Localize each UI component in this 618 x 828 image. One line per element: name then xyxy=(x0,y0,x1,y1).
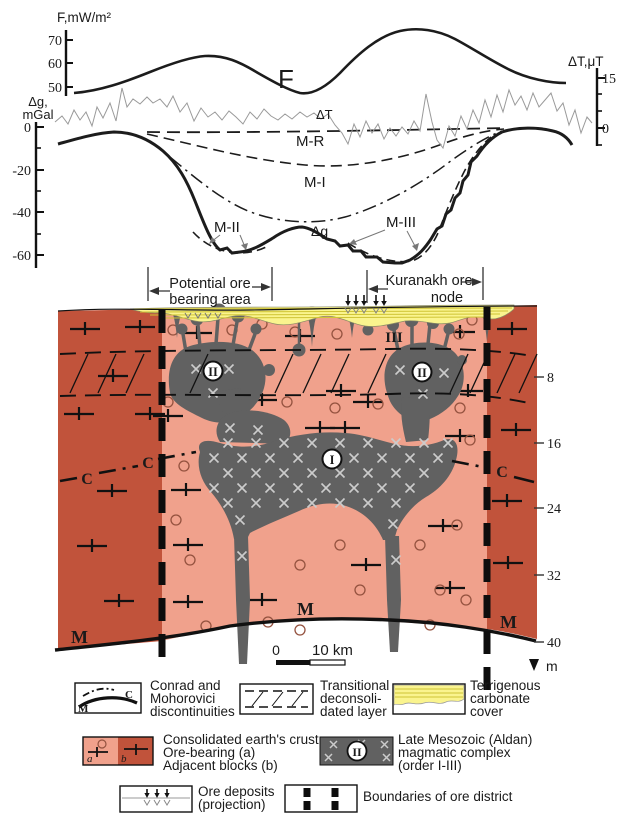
right-adjacent-block xyxy=(487,305,537,639)
figure-svg: 70 60 50 F,mW/m² 0 -20 -40 -60 Δg, mGal … xyxy=(0,0,618,823)
legend-a-symbol: a xyxy=(87,753,93,765)
legend-label: (projection) xyxy=(198,797,266,812)
scale-bar-filled xyxy=(276,660,310,665)
dt-curve-label: ΔT xyxy=(316,107,333,122)
kuranakh-node-label: node xyxy=(431,290,463,306)
miii-label: M-III xyxy=(386,214,416,231)
body-label-i: I xyxy=(323,450,342,469)
legend-m-symbol: M xyxy=(78,703,89,715)
legend-label: Adjacent blocks (b) xyxy=(163,758,278,773)
f-tick-label: 70 xyxy=(48,34,62,49)
depth-tick-label: 40 xyxy=(547,636,561,651)
legend-label: Boundaries of ore district xyxy=(363,789,513,804)
body-label-ii-right: II xyxy=(413,363,432,382)
f-curve-label: F xyxy=(278,64,294,94)
dike-bulb xyxy=(251,324,262,335)
potential-area-label: bearing area xyxy=(169,292,251,308)
moho-m-label: M xyxy=(500,612,517,632)
conrad-c-label: C xyxy=(496,464,508,481)
body-label-text: II xyxy=(417,366,427,380)
dg-tick-label: -40 xyxy=(12,206,31,221)
conrad-c-label: C xyxy=(142,455,154,472)
dike-bulb xyxy=(263,364,275,376)
mii-label: M-II xyxy=(214,219,240,236)
scale-bar-open xyxy=(310,660,345,665)
legend-label: dated layer xyxy=(320,704,387,719)
f-tick-label: 50 xyxy=(48,81,62,96)
legend-ii-symbol: II xyxy=(352,745,362,759)
mr-label: M-R xyxy=(296,133,324,150)
potential-area-label: Potential ore xyxy=(169,276,250,292)
dg-tick-label: -60 xyxy=(12,249,31,264)
kuranakh-node-label: Kuranakh ore xyxy=(385,273,472,289)
legend-box-boundaries xyxy=(285,785,357,812)
dg-curve-label: Δg xyxy=(311,223,328,239)
dg-tick-label: 0 xyxy=(24,121,31,136)
f-tick-label: 60 xyxy=(48,57,62,72)
dg-tick-label: -20 xyxy=(12,164,31,179)
mi-label: M-I xyxy=(304,174,326,191)
f-axis-title: F,mW/m² xyxy=(57,10,111,25)
depth-tick-label: 8 xyxy=(547,371,554,386)
depth-tick-label: 32 xyxy=(547,569,561,584)
legend-label: discontinuities xyxy=(150,704,235,719)
body-label-iii: III xyxy=(385,330,403,346)
scale-length-label: 10 km xyxy=(312,642,353,659)
legend-label: cover xyxy=(470,704,504,719)
depth-tick-label: 24 xyxy=(547,502,561,517)
moho-m-label: M xyxy=(71,627,88,647)
dt-axis-title: ΔT,μT xyxy=(568,54,604,69)
dt-tick-label: 0 xyxy=(602,122,609,137)
depth-tick-label: 16 xyxy=(547,437,561,452)
figure-geophysical-section: 70 60 50 F,mW/m² 0 -20 -40 -60 Δg, mGal … xyxy=(0,0,618,823)
legend-b-symbol: b xyxy=(121,753,127,765)
depth-unit-label: m xyxy=(546,658,558,674)
dg-axis-title: mGal xyxy=(22,107,53,122)
legend-box-transitional xyxy=(240,684,313,714)
legend-label: (order I-III) xyxy=(398,758,462,773)
body-ii-right-neck xyxy=(401,396,430,442)
body-label-text: I xyxy=(330,453,335,467)
scale-zero: 0 xyxy=(272,642,280,658)
conrad-c-label: C xyxy=(81,471,93,488)
body-label-ii-left: II xyxy=(204,362,223,381)
dike-bulb xyxy=(444,324,455,335)
dt-tick-label: 15 xyxy=(602,72,616,87)
legend-c-symbol: C xyxy=(125,689,133,701)
body-label-text: II xyxy=(208,365,218,379)
moho-m-label: M xyxy=(297,599,314,619)
legend-box-ore-deposits xyxy=(120,786,192,812)
